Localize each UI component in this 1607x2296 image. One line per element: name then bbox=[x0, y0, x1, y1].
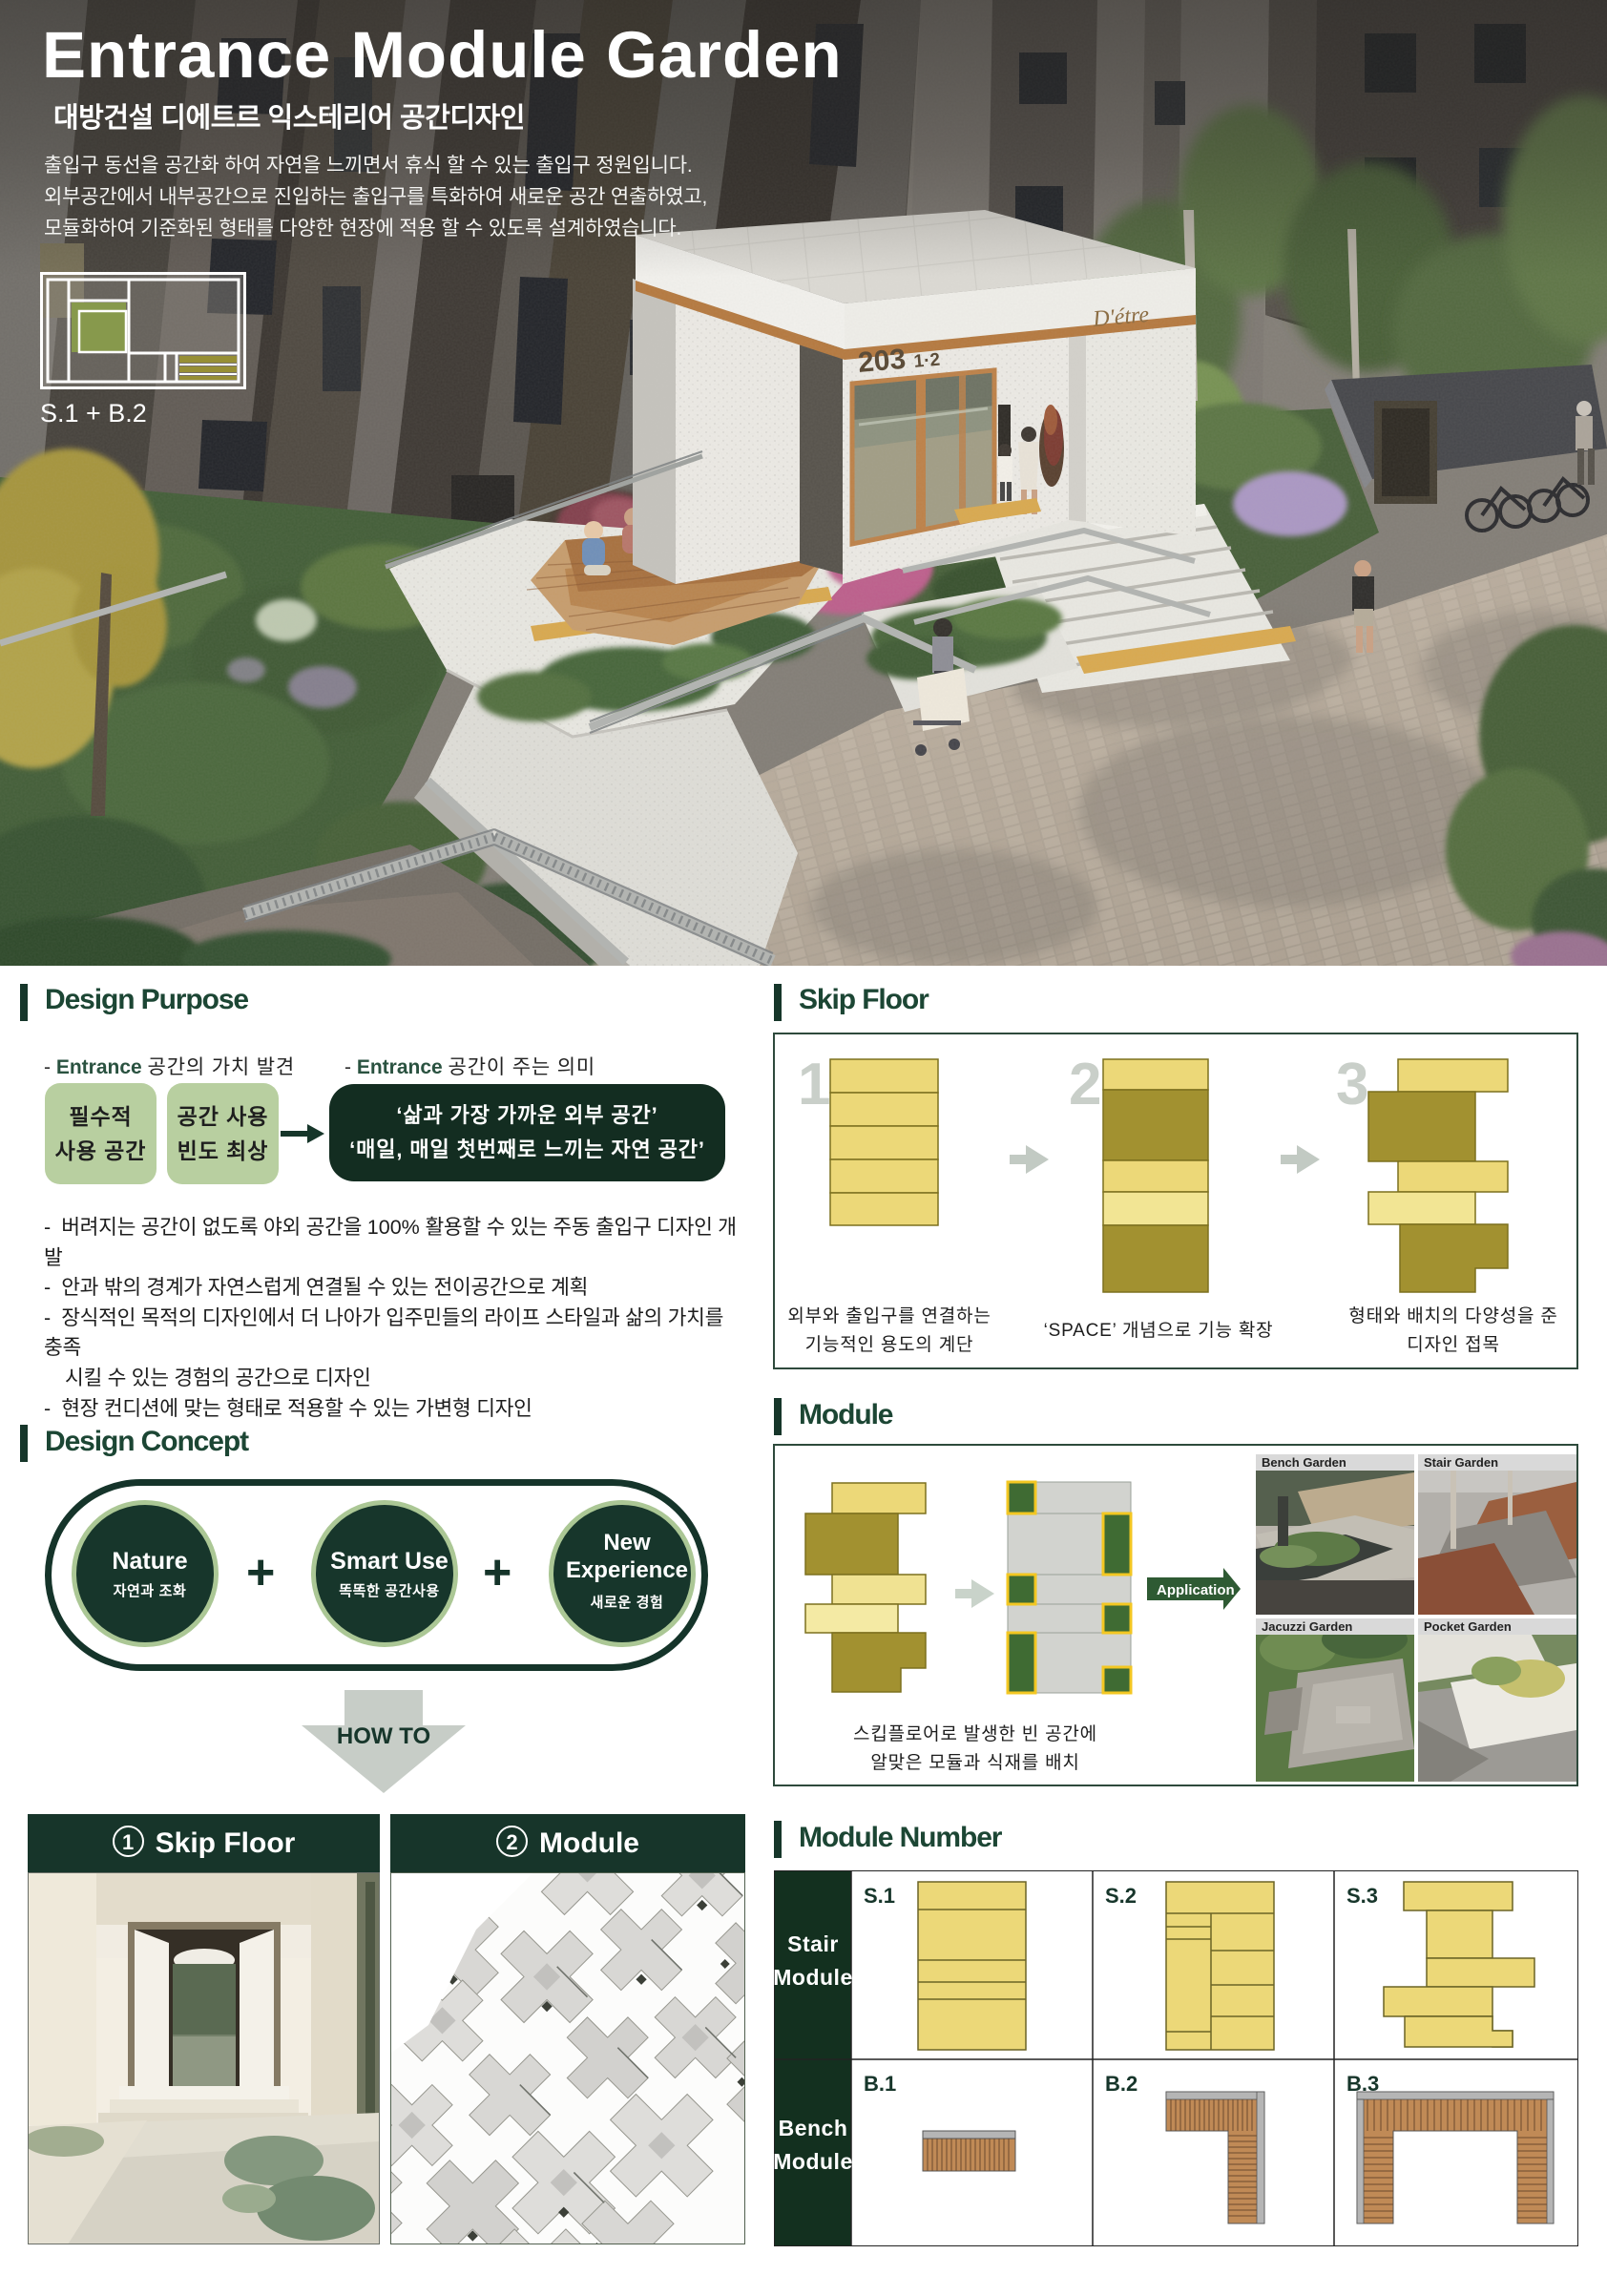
svg-text:Stair: Stair bbox=[787, 1931, 839, 1956]
svg-text:S.1: S.1 bbox=[864, 1884, 895, 1908]
svg-text:1: 1 bbox=[798, 1052, 830, 1117]
svg-text:Bench: Bench bbox=[779, 2116, 848, 2140]
svg-text:B.2: B.2 bbox=[1105, 2072, 1137, 2096]
svg-text:스킵플로어로 발생한 빈 공간에: 스킵플로어로 발생한 빈 공간에 bbox=[853, 1723, 1097, 1744]
svg-text:‘SPACE’ 개념으로 기능 확장: ‘SPACE’ 개념으로 기능 확장 bbox=[1044, 1320, 1274, 1341]
svg-text:외부와 출입구를 연결하는: 외부와 출입구를 연결하는 bbox=[787, 1305, 991, 1326]
svg-text:Module: Module bbox=[774, 2149, 853, 2174]
svg-text:Jacuzzi Garden: Jacuzzi Garden bbox=[1262, 1619, 1352, 1634]
svg-text:형태와 배치의 다양성을 준: 형태와 배치의 다양성을 준 bbox=[1348, 1305, 1557, 1326]
svg-text:Bench Garden: Bench Garden bbox=[1262, 1455, 1346, 1470]
svg-text:3: 3 bbox=[1336, 1052, 1368, 1117]
svg-text:S.3: S.3 bbox=[1346, 1884, 1378, 1908]
svg-text:Stair Garden: Stair Garden bbox=[1424, 1455, 1498, 1470]
svg-text:B.1: B.1 bbox=[864, 2072, 896, 2096]
svg-text:Module: Module bbox=[774, 1965, 853, 1990]
svg-text:S.2: S.2 bbox=[1105, 1884, 1137, 1908]
svg-text:디자인 접목: 디자인 접목 bbox=[1407, 1334, 1499, 1355]
svg-text:Application: Application bbox=[1157, 1582, 1235, 1598]
svg-text:Pocket Garden: Pocket Garden bbox=[1424, 1619, 1512, 1634]
svg-text:기능적인 용도의 계단: 기능적인 용도의 계단 bbox=[805, 1334, 974, 1355]
svg-text:2: 2 bbox=[1069, 1052, 1101, 1117]
svg-text:알맞은 모듈과 식재를 배치: 알맞은 모듈과 식재를 배치 bbox=[870, 1752, 1079, 1773]
